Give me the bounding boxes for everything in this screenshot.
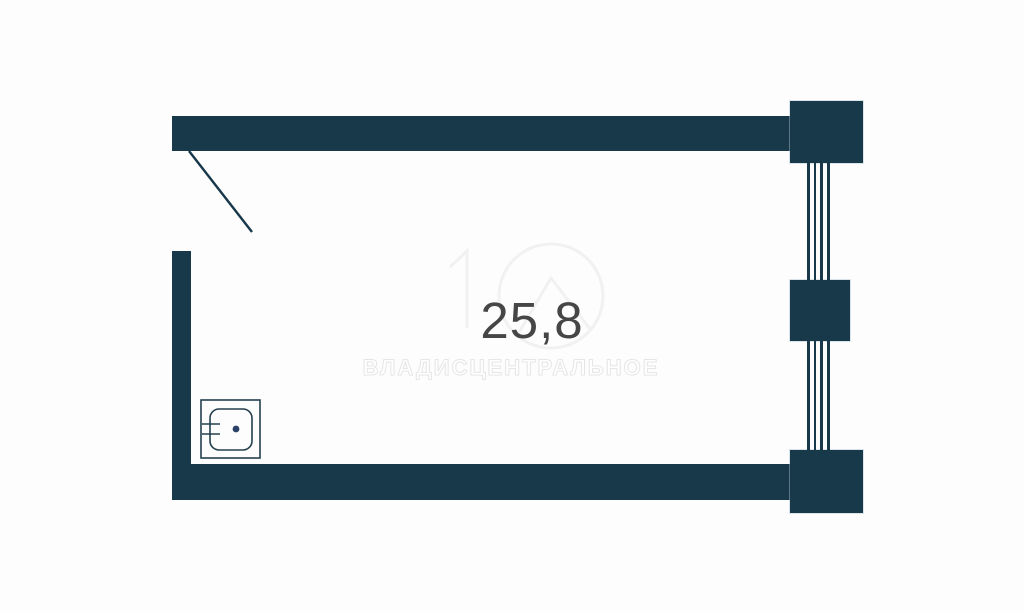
watermark-text: ВЛАДИСЦЕНТРАЛЬНОЕ: [360, 355, 662, 381]
window-mullion: [807, 163, 810, 280]
pillar-bottom-right: [790, 450, 863, 513]
pillar-middle-right: [790, 280, 850, 341]
door-leaf-line: [189, 151, 252, 232]
window-mullion: [827, 163, 830, 280]
window-mullion: [820, 163, 823, 280]
room-area-label: 25,8: [432, 293, 632, 349]
window-upper: [806, 163, 832, 280]
window-mullion: [814, 163, 817, 280]
window-mullion: [807, 341, 810, 451]
sink-icon: [198, 397, 264, 463]
window-lower: [806, 341, 832, 451]
sink-basin: [210, 409, 252, 450]
window-mullion: [820, 341, 823, 451]
window-mullion: [814, 341, 817, 451]
sink-drain-dot: [233, 426, 240, 433]
wall-bottom: [172, 464, 790, 500]
pillar-top-right: [790, 101, 863, 163]
floorplan-canvas: ВЛАДИСЦЕНТРАЛЬНОЕ 25,8: [0, 0, 1024, 612]
wall-left: [172, 251, 191, 500]
window-mullion: [827, 341, 830, 451]
door-swing-line: [180, 145, 265, 245]
